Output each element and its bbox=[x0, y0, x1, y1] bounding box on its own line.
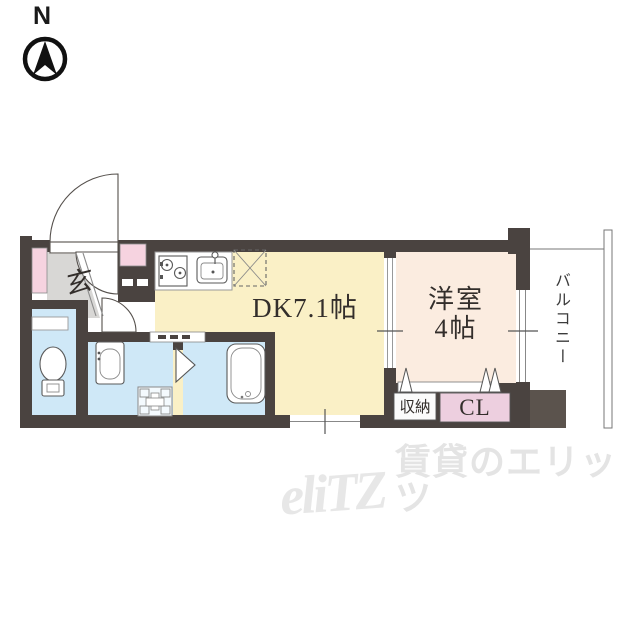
label-western-room: 洋室 bbox=[428, 285, 484, 314]
watermark-text: 賃貸のエリッツ bbox=[395, 445, 640, 517]
bathtub-icon bbox=[227, 344, 265, 403]
toilet-icon bbox=[40, 347, 66, 396]
entrance-door-arc bbox=[50, 174, 118, 242]
floor-plan-page: N bbox=[0, 0, 640, 640]
label-balcony: バルコニー bbox=[548, 272, 572, 422]
toilet-door-leaf bbox=[32, 317, 68, 330]
kitchen-cabinet bbox=[120, 244, 146, 266]
washbasin-icon bbox=[96, 342, 124, 384]
hall-door-arc-lower bbox=[102, 298, 136, 332]
washing-machine-pan-icon bbox=[138, 387, 172, 416]
entrance-door bbox=[50, 174, 118, 254]
vent-mark bbox=[122, 279, 133, 286]
vent-mark bbox=[137, 279, 148, 286]
floor-plan: DK7.1帖 洋室 4帖 玄 収納 CL bbox=[0, 0, 640, 640]
entrance-door-leaf bbox=[50, 242, 118, 253]
shoe-cabinet bbox=[32, 248, 47, 293]
balcony-rail bbox=[604, 230, 612, 428]
washroom-sliding-door bbox=[150, 332, 205, 342]
label-closet: CL bbox=[459, 395, 490, 420]
label-dk: DK7.1帖 bbox=[252, 293, 358, 323]
label-storage: 収納 bbox=[399, 398, 430, 416]
watermark-logo: eliTZ bbox=[279, 468, 387, 521]
label-western-room-size: 4帖 bbox=[434, 314, 477, 343]
kitchen-stove-icon bbox=[159, 256, 187, 286]
kitchen-sink-icon bbox=[197, 252, 227, 283]
watermark: eliTZ 賃貸のエリッツ bbox=[280, 445, 640, 517]
